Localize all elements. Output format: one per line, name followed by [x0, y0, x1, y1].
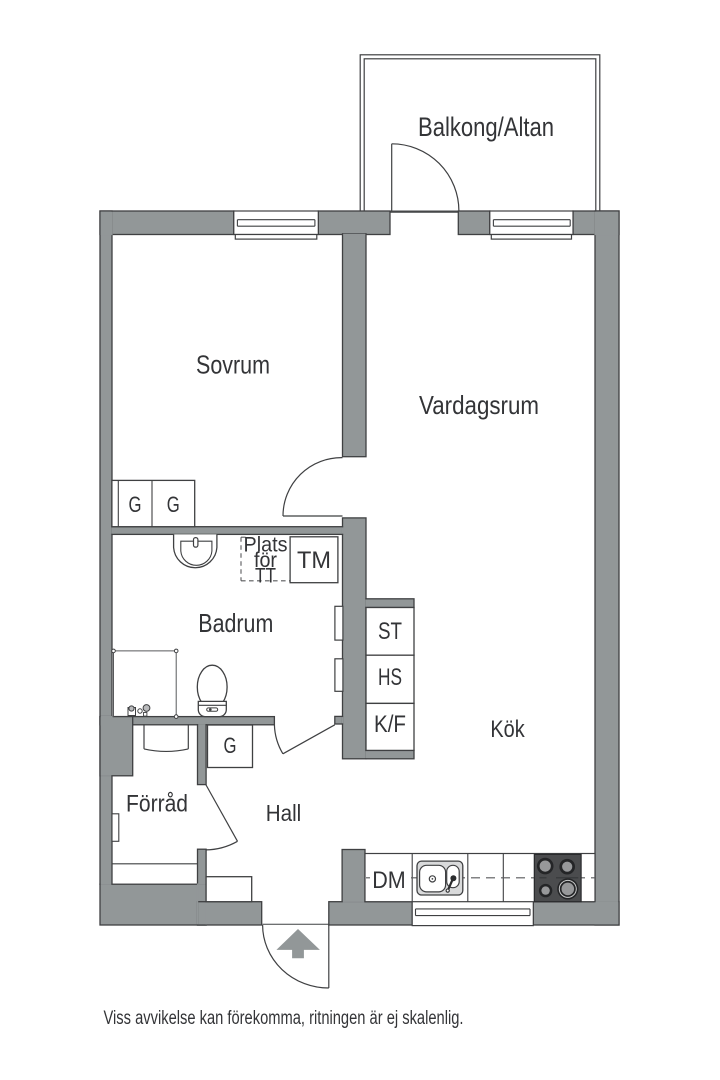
svg-text:Vardagsrum: Vardagsrum — [419, 390, 539, 420]
svg-text:DM: DM — [372, 867, 406, 894]
svg-text:G: G — [224, 733, 237, 758]
svg-text:K/F: K/F — [374, 711, 406, 738]
svg-text:G: G — [167, 492, 180, 517]
svg-text:G: G — [129, 492, 142, 517]
svg-text:Kök: Kök — [490, 716, 525, 743]
svg-text:Hall: Hall — [266, 800, 302, 826]
svg-text:Förråd: Förråd — [126, 790, 188, 817]
svg-text:HS: HS — [378, 664, 402, 691]
svg-text:Badrum: Badrum — [198, 608, 273, 638]
svg-text:Balkong/Altan: Balkong/Altan — [418, 112, 554, 142]
svg-text:ST: ST — [378, 618, 402, 645]
svg-text:Viss avvikelse kan förekomma,: Viss avvikelse kan förekomma, ritningen … — [104, 1008, 464, 1029]
svg-text:TT: TT — [255, 565, 276, 588]
svg-text:TM: TM — [297, 547, 331, 574]
svg-text:Sovrum: Sovrum — [196, 349, 270, 379]
